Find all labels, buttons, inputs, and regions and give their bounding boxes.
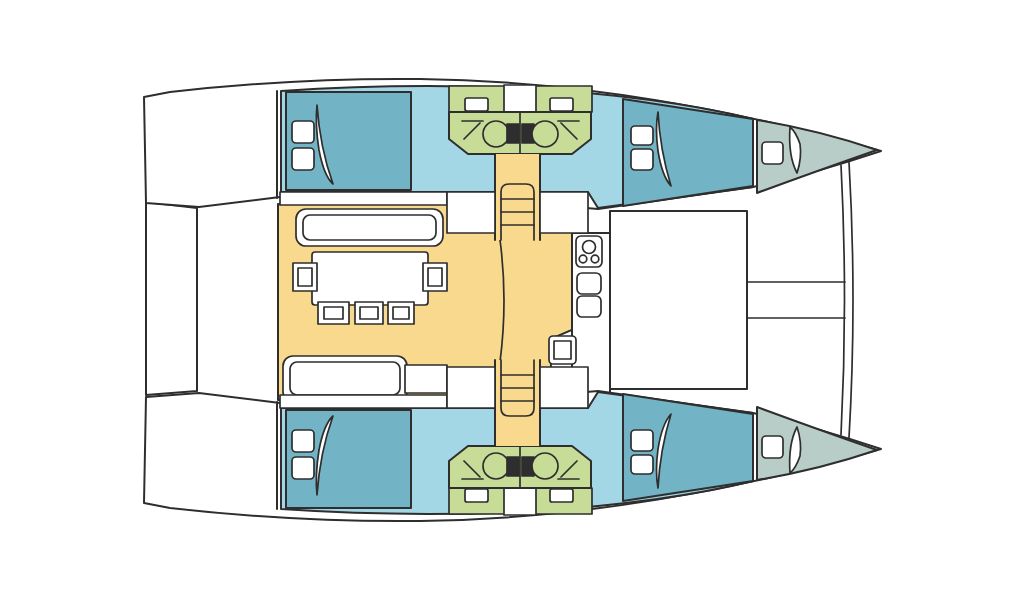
bathroom-sink-right (532, 121, 558, 147)
forepeak-hatch (762, 142, 783, 164)
stair-locker-right (540, 192, 588, 233)
stair-locker-left (447, 192, 495, 233)
deck-hatch-right (550, 98, 573, 111)
chair-bottom-1 (318, 302, 349, 324)
chair-bottom-3 (388, 302, 414, 324)
deck-hatch-left (465, 98, 488, 111)
catamaran-deck-plan (0, 0, 1024, 600)
toilet-left (507, 124, 519, 143)
forward-bed-pillow-1 (631, 126, 653, 145)
forward-bed-pillow-2 (631, 149, 653, 170)
bathroom-sink-left (483, 121, 509, 147)
aft-platform (146, 202, 197, 395)
dining-table (312, 252, 428, 305)
aft-bed-pillow-2 (292, 148, 314, 170)
cockpit (610, 211, 747, 389)
aft-bed-pillow-1 (292, 121, 314, 143)
galley-cabinet-2 (577, 296, 601, 317)
deck-plan-canvas (0, 0, 1024, 600)
galley-cabinet-1 (577, 273, 601, 294)
salon-locker (405, 365, 447, 393)
inner-deck-band (280, 192, 447, 205)
companionway-door (504, 85, 536, 113)
